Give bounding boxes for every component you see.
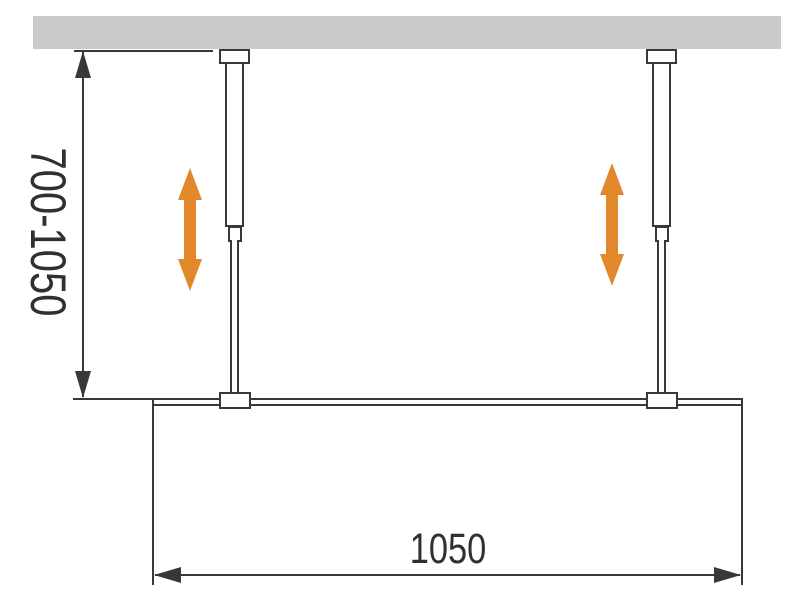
top-extension-line	[74, 50, 213, 52]
arrow-down-icon	[178, 259, 202, 291]
width-dimension-label: 1050	[368, 529, 528, 569]
arrow-up-icon	[178, 168, 202, 200]
glass-right-edge	[741, 398, 743, 585]
left-height-adjust-arrow-icon	[178, 168, 202, 291]
arrow-shaft	[606, 195, 618, 254]
horizontal-dimension-line	[155, 574, 740, 576]
height-dimension-label: 700-1050	[26, 128, 70, 336]
right-glass-clamp	[646, 392, 678, 409]
support-bar-line	[73, 398, 743, 400]
glass-left-edge	[152, 398, 154, 585]
dimension-arrowhead-up-icon	[75, 51, 91, 78]
arrow-down-icon	[600, 254, 624, 286]
dimension-arrowhead-down-icon	[75, 371, 91, 398]
left-glass-clamp	[219, 392, 251, 409]
dimension-arrowhead-right-icon	[714, 567, 741, 583]
left-lower-rod	[230, 240, 239, 394]
right-height-adjust-arrow-icon	[600, 163, 624, 286]
right-ceiling-bracket	[646, 49, 677, 64]
right-upper-tube	[652, 61, 671, 227]
diagram-canvas: 700-1050 1050	[0, 0, 800, 599]
left-ceiling-bracket	[219, 49, 250, 64]
left-upper-tube	[225, 61, 244, 227]
arrow-up-icon	[600, 163, 624, 195]
vertical-dimension-line	[82, 52, 84, 397]
arrow-shaft	[184, 200, 196, 259]
ceiling-slab	[33, 16, 781, 49]
right-lower-rod	[657, 240, 666, 394]
dimension-arrowhead-left-icon	[154, 567, 181, 583]
